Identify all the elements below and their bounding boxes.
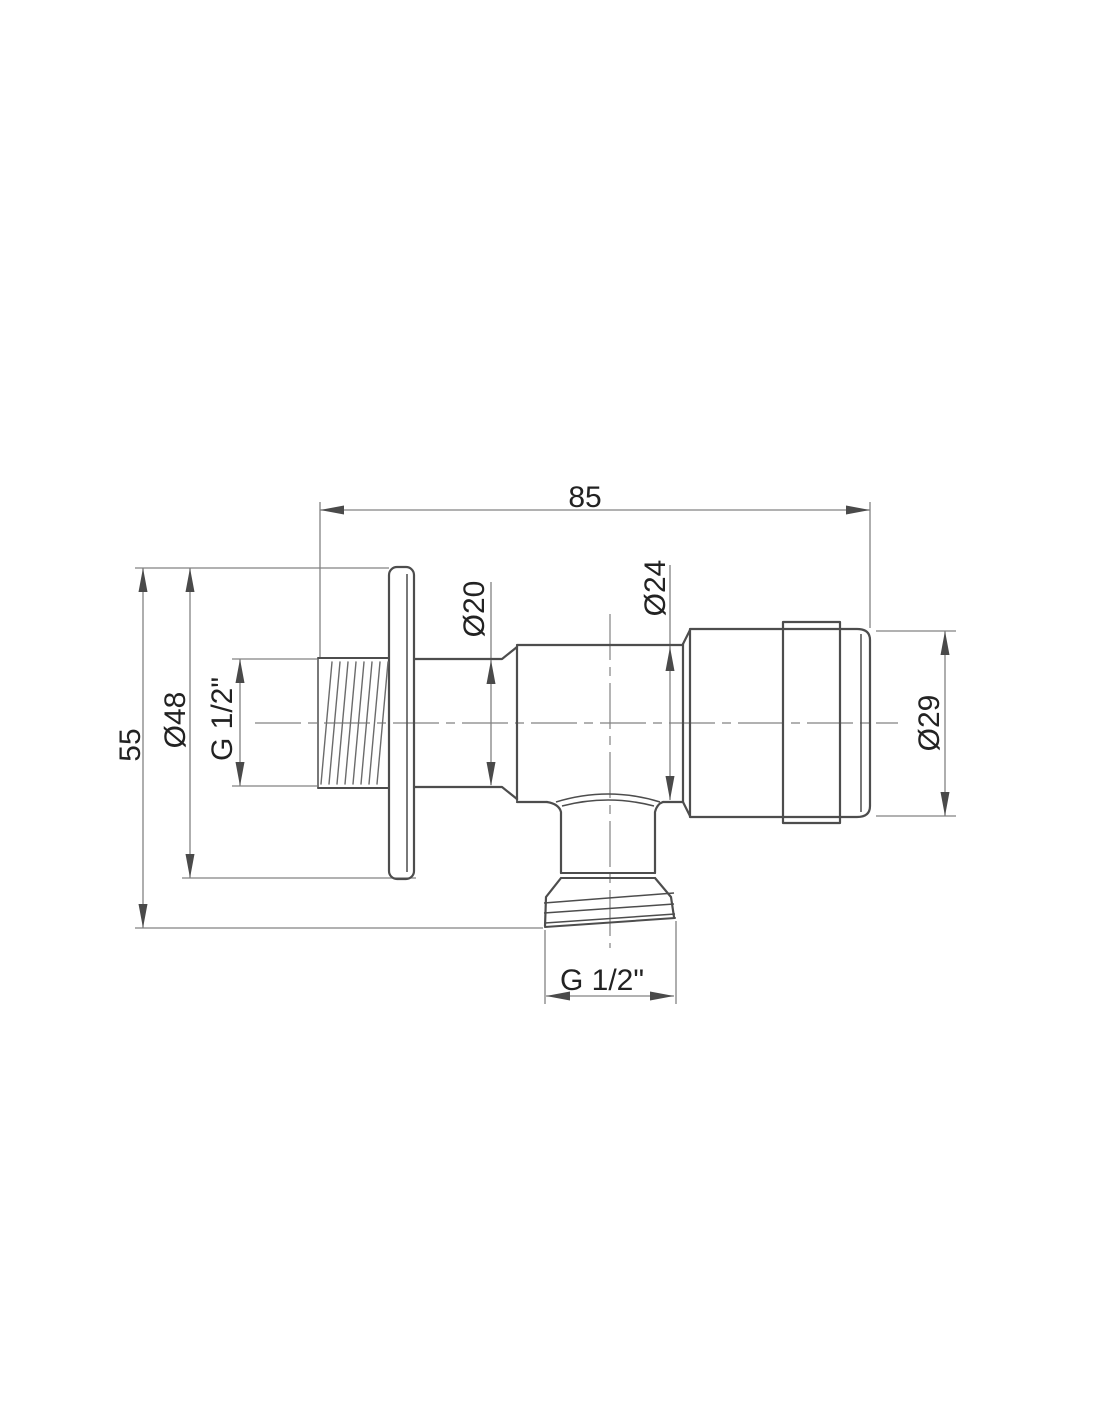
outlet-dome-inner-arc [562,800,654,806]
valve-outline [318,567,870,927]
arrowhead [320,506,344,515]
dim-label-body-diameter: Ø24 [639,560,672,617]
arrowhead [941,792,950,816]
arrowhead [666,776,675,800]
neck-bottom-edge [414,787,517,799]
thread-hatch-line [544,904,674,913]
arrowhead [139,904,148,928]
dim-label-flange-diameter: Ø48 [159,692,192,749]
dim-label-overall-length: 85 [568,481,601,514]
dimension-labels: 85 55 Ø48 G 1/2" Ø20 Ø24 Ø29 G 1/2" [114,481,946,997]
arrowhead [139,568,148,592]
page: 85 55 Ø48 G 1/2" Ø20 Ø24 Ø29 G 1/2" [0,0,1100,1422]
arrowhead [186,854,195,878]
dim-label-overall-height: 55 [114,728,147,761]
outlet-dome-outer-arc [556,794,660,802]
arrowhead [487,762,496,786]
extension-lines [135,502,956,1004]
dim-label-handle-diameter: Ø29 [913,695,946,752]
dim-label-outlet-thread: G 1/2" [560,964,644,997]
thread-hatch-line [544,893,674,903]
outlet-neck-left [547,802,561,873]
valve-technical-drawing: 85 55 Ø48 G 1/2" Ø20 Ø24 Ø29 G 1/2" [0,0,1100,1422]
outlet-collar-right [655,878,674,917]
neck-top-edge [414,647,517,659]
arrowhead [236,762,245,786]
arrowhead [846,506,870,515]
arrowhead [650,992,674,1001]
arrowhead [941,631,950,655]
arrowhead [186,568,195,592]
outlet-neck-right [655,802,663,873]
centerlines [255,614,898,948]
dim-label-neck-diameter: Ø20 [458,581,491,638]
dim-label-inlet-thread: G 1/2" [206,677,239,761]
arrowhead [666,647,675,671]
arrowhead [487,660,496,684]
